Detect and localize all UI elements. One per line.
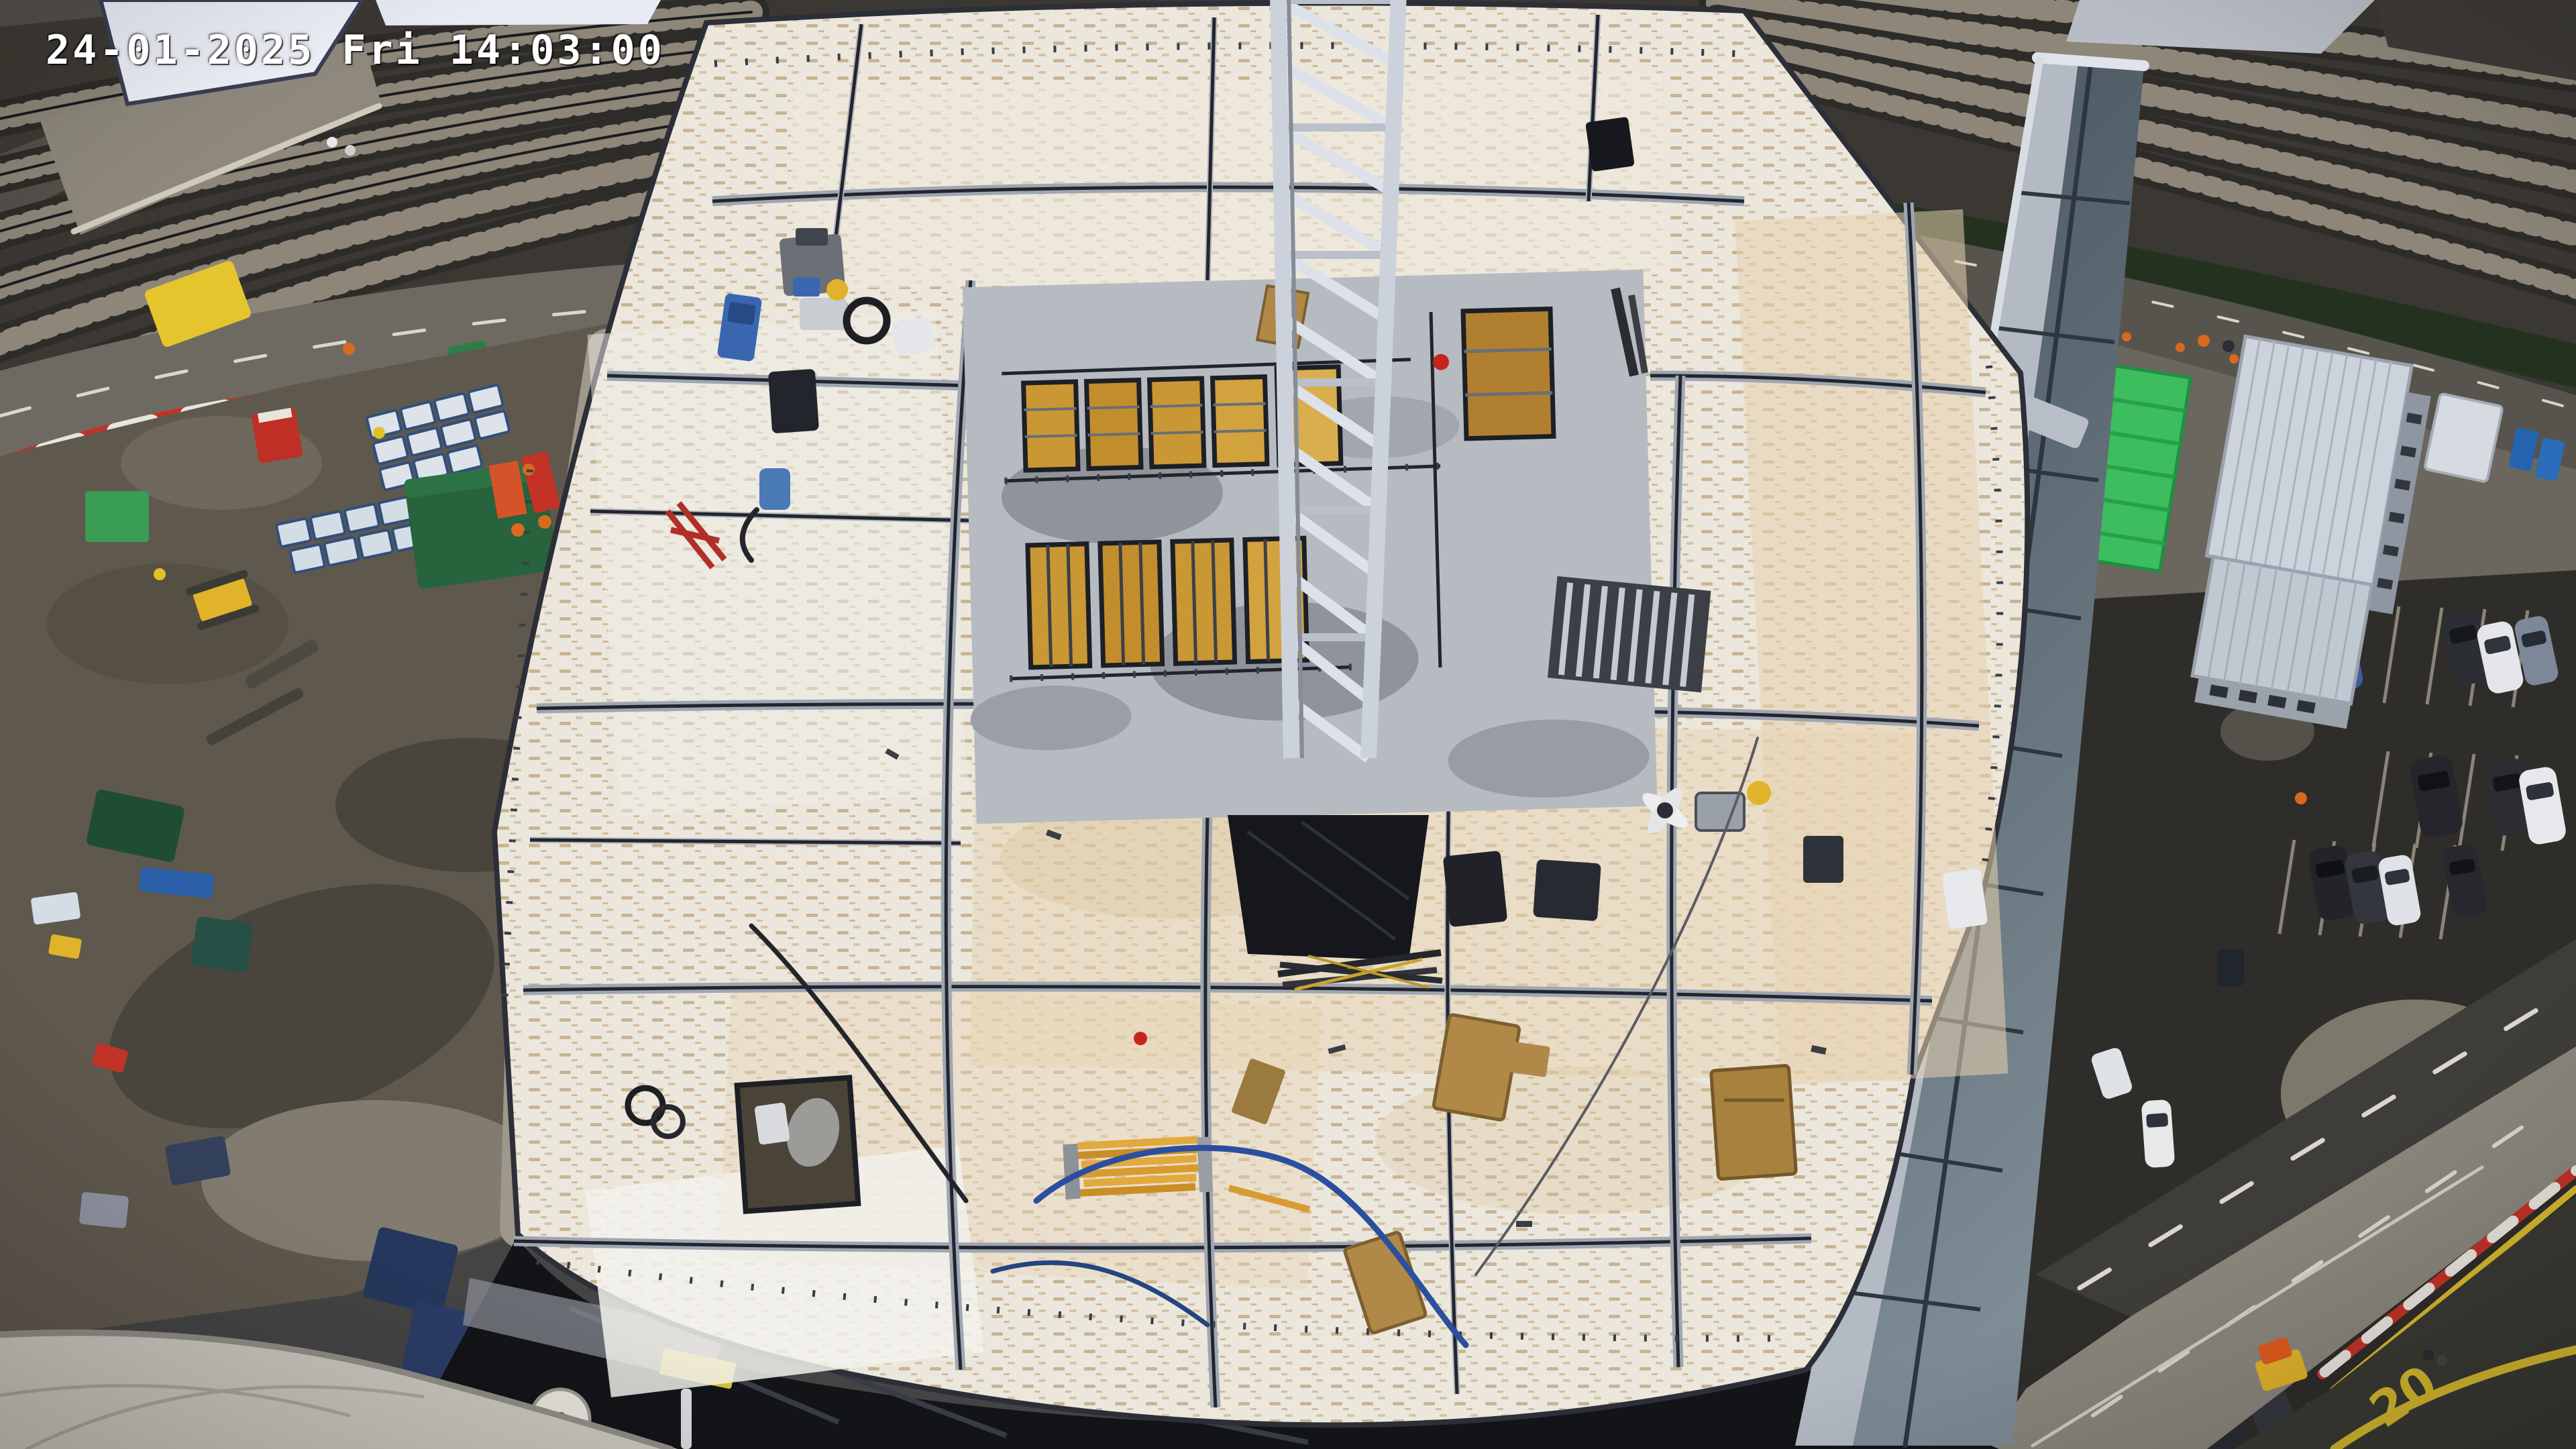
cctv-frame: 20 [0, 0, 2576, 1449]
timestamp-overlay: 24-01-2025 Fri 14:03:00 [46, 27, 665, 74]
lens-vignette [0, 0, 2576, 1449]
construction-site-photo: 20 [0, 0, 2576, 1449]
